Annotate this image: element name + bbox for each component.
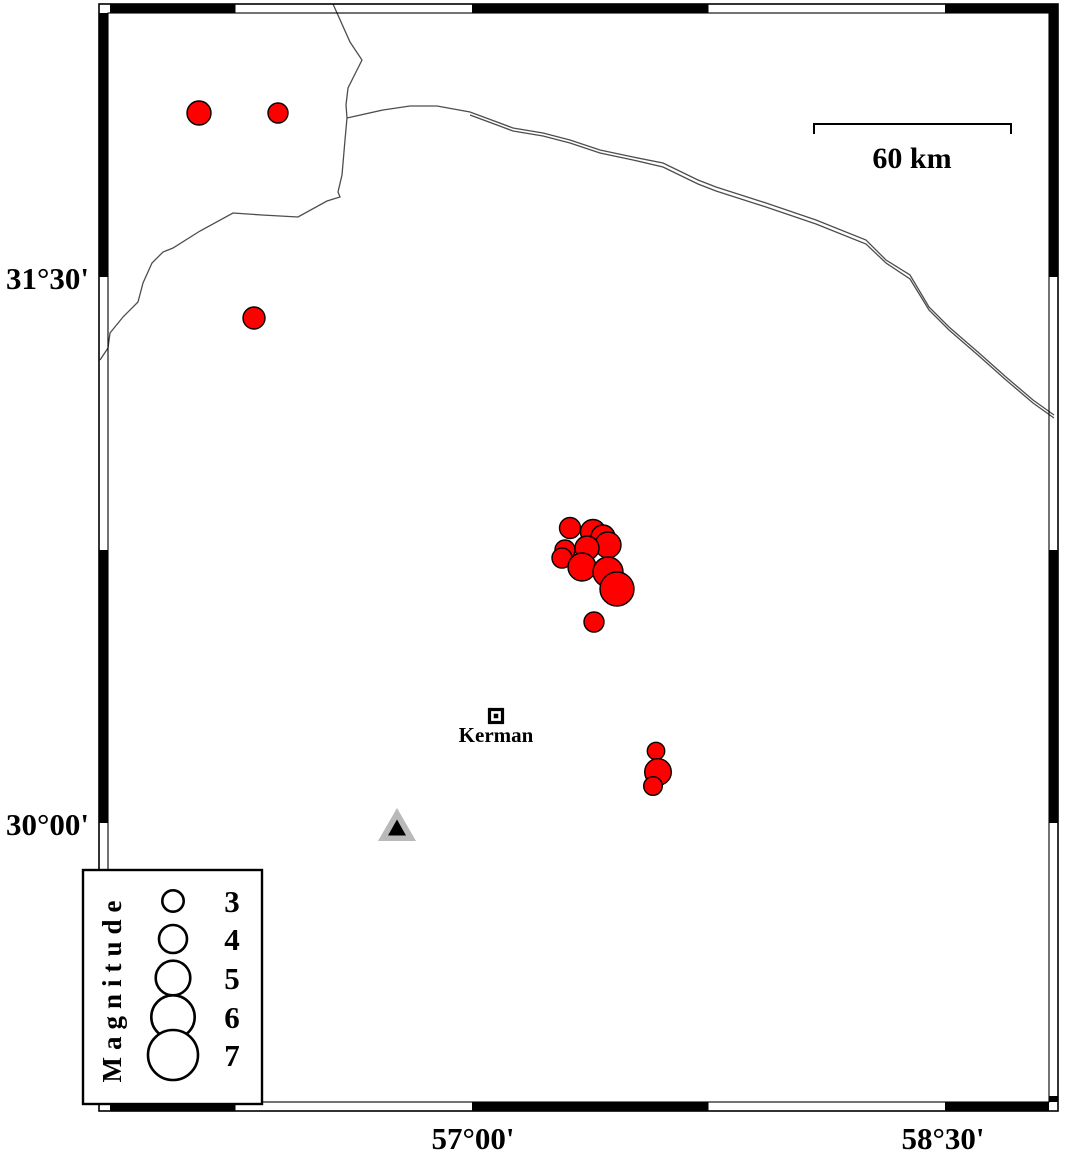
legend-title: Magnitude [97,893,127,1082]
border-line-west [100,4,362,360]
frame-tick-left [99,550,108,823]
scale-bar-bracket [814,124,1011,134]
legend-magnitude-circle [159,925,187,953]
frame-tick-top [945,4,1058,13]
legend-magnitude-circle [148,1030,198,1080]
frame-tick-bottom [945,1102,1049,1111]
longitude-label: 58°30' [901,1121,984,1154]
legend-magnitude-value: 7 [224,1038,240,1073]
map-canvas: 60 km Kerman 31°30'30°00'57°00'58°30' Ma… [0,0,1066,1154]
earthquake-epicenters [187,101,671,795]
legend-magnitude-circle [162,890,183,911]
legend-magnitude-value: 3 [224,884,240,919]
frame-tick-right [1049,1096,1058,1102]
epicenter-circle [644,777,663,796]
epicenter-circle [584,612,604,632]
seismicity-map: 60 km Kerman 31°30'30°00'57°00'58°30' Ma… [0,0,1066,1154]
frame-tick-left [99,13,108,277]
legend-magnitude-value: 4 [224,922,240,957]
epicenter-circle [647,742,664,759]
city-marker-kerman: Kerman [459,710,534,748]
boundary-lines [100,4,1054,418]
scale-bar-label: 60 km [872,142,951,175]
frame-tick-top [110,4,236,13]
border-line-northeast-lower [470,115,1054,418]
frame-tick-top [472,4,709,13]
city-label: Kerman [459,723,534,747]
epicenter-circle [600,572,634,606]
frame-tick-bottom [472,1102,709,1111]
city-square-dot [494,714,499,719]
legend-magnitude-circle [156,961,191,996]
epicenter-circle [268,103,288,123]
epicenter-circle [243,307,265,329]
legend-magnitude-value: 6 [224,1000,240,1035]
longitude-label: 57°00' [431,1121,514,1154]
frame-tick-right [1049,13,1058,277]
legend-magnitude-value: 5 [224,961,240,996]
frame-tick-right [1049,550,1058,823]
magnitude-legend: Magnitude34567 [83,870,262,1104]
epicenter-circle [568,553,596,581]
scale-bar: 60 km [814,124,1011,175]
station-triangle [378,808,416,841]
latitude-label: 31°30' [6,261,89,296]
epicenter-circle [560,518,581,539]
epicenter-circle [187,101,211,125]
latitude-label: 30°00' [6,807,89,842]
